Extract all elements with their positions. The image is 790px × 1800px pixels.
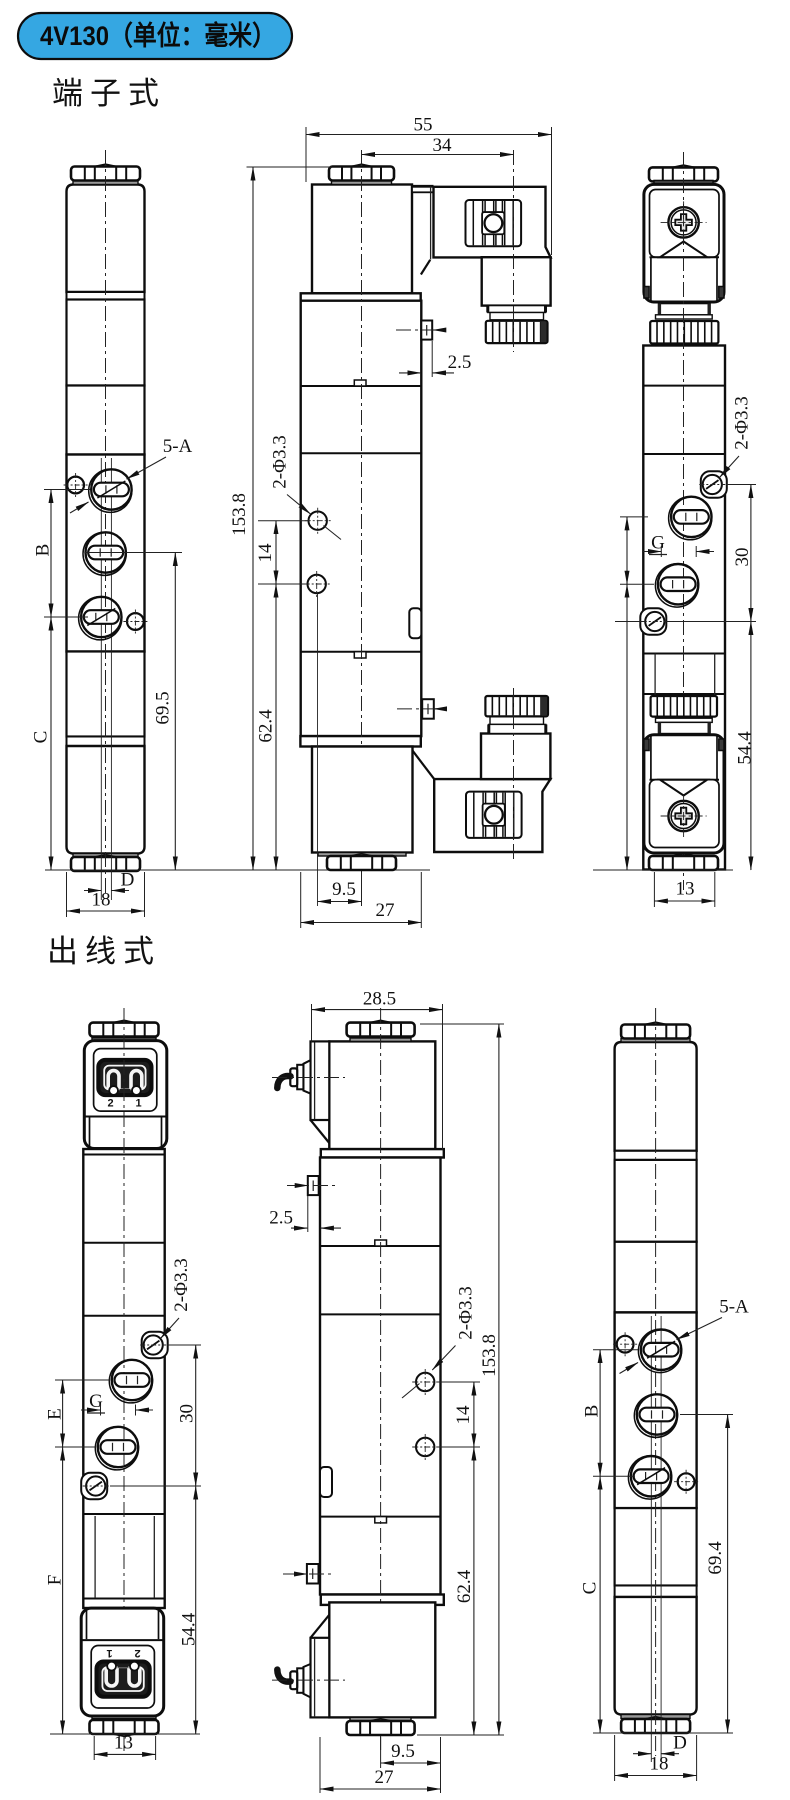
svg-text:153.8: 153.8	[479, 1334, 500, 1377]
svg-text:5-A: 5-A	[163, 436, 193, 457]
svg-text:55: 55	[414, 114, 433, 135]
svg-text:153.8: 153.8	[229, 493, 250, 536]
svg-text:2-Φ3.3: 2-Φ3.3	[269, 435, 290, 488]
svg-text:69.5: 69.5	[152, 691, 173, 724]
svg-text:G: G	[89, 1391, 103, 1412]
svg-text:14: 14	[255, 543, 276, 563]
svg-text:30: 30	[176, 1404, 197, 1423]
svg-text:B: B	[581, 1405, 602, 1418]
svg-text:C: C	[579, 1582, 600, 1595]
svg-text:1: 1	[106, 1647, 112, 1659]
svg-text:2-Φ3.3: 2-Φ3.3	[455, 1286, 476, 1339]
svg-text:30: 30	[732, 548, 753, 567]
svg-text:D: D	[673, 1732, 687, 1753]
svg-text:13: 13	[114, 1732, 133, 1753]
svg-text:2: 2	[134, 1647, 140, 1659]
svg-text:2.5: 2.5	[269, 1207, 293, 1228]
svg-text:D: D	[121, 869, 135, 890]
svg-text:4V130（单位：毫米）: 4V130（单位：毫米）	[40, 20, 276, 51]
svg-text:2: 2	[107, 1097, 113, 1109]
svg-text:E: E	[44, 1408, 65, 1420]
svg-text:2-Φ3.3: 2-Φ3.3	[731, 396, 752, 449]
svg-text:27: 27	[376, 900, 395, 921]
svg-text:2-Φ3.3: 2-Φ3.3	[171, 1258, 192, 1311]
svg-text:5-A: 5-A	[719, 1296, 749, 1317]
svg-text:B: B	[32, 544, 53, 557]
svg-text:端子式: 端子式	[52, 76, 166, 111]
svg-text:54.4: 54.4	[734, 731, 755, 765]
svg-text:18: 18	[650, 1753, 669, 1774]
svg-text:28.5: 28.5	[363, 988, 396, 1009]
svg-text:9.5: 9.5	[332, 879, 356, 900]
svg-text:1: 1	[135, 1097, 141, 1109]
svg-text:9.5: 9.5	[391, 1741, 415, 1762]
svg-text:34: 34	[433, 135, 453, 156]
svg-text:2.5: 2.5	[448, 352, 472, 373]
svg-text:27: 27	[375, 1767, 394, 1788]
svg-text:14: 14	[453, 1405, 474, 1425]
svg-text:F: F	[44, 1575, 65, 1586]
svg-text:54.4: 54.4	[178, 1612, 199, 1646]
svg-text:69.4: 69.4	[705, 1541, 726, 1575]
svg-text:62.4: 62.4	[255, 709, 276, 743]
svg-text:13: 13	[676, 878, 695, 899]
svg-text:C: C	[30, 731, 51, 744]
svg-text:18: 18	[92, 889, 111, 910]
svg-text:62.4: 62.4	[454, 1569, 475, 1603]
svg-text:出线式: 出线式	[47, 934, 161, 969]
svg-text:G: G	[651, 532, 665, 553]
